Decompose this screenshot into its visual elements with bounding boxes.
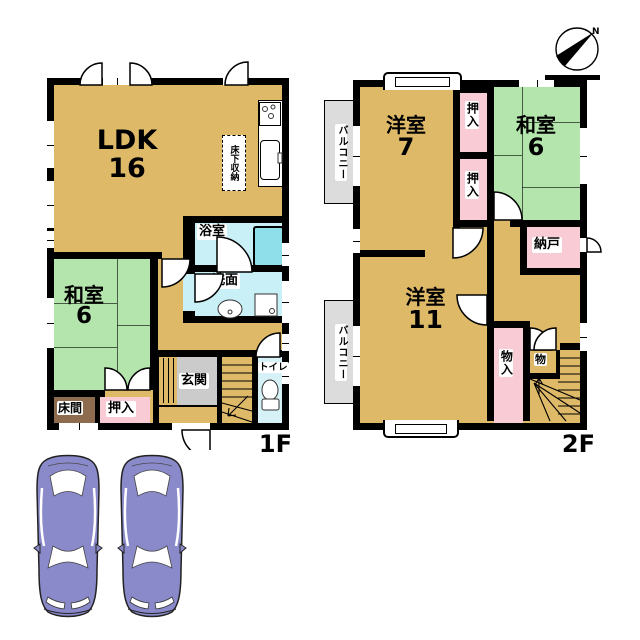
exterior-door-swing bbox=[587, 238, 601, 252]
wall bbox=[183, 216, 195, 274]
up-arrow bbox=[535, 378, 543, 394]
window bbox=[353, 325, 360, 387]
wall bbox=[183, 216, 282, 223]
window bbox=[47, 297, 54, 349]
nando-label: 納戸 bbox=[532, 237, 562, 253]
stove-burner-icon bbox=[259, 102, 281, 126]
oshiire-lower-label: 押入 bbox=[465, 171, 479, 199]
wall bbox=[520, 268, 580, 275]
tatami-line bbox=[117, 325, 150, 326]
yoshitsu11-name: 洋室 bbox=[378, 287, 473, 307]
wall bbox=[460, 152, 487, 159]
yoshitsu7-size: 7 bbox=[362, 135, 450, 159]
wall bbox=[487, 227, 494, 421]
window bbox=[518, 80, 555, 87]
wall bbox=[54, 252, 162, 259]
washitsu-2f-name: 和室 bbox=[494, 115, 578, 135]
bathroom-label: 浴室 bbox=[197, 224, 227, 240]
wall bbox=[510, 220, 580, 227]
closet-door-swing bbox=[530, 328, 552, 350]
car-top-view-icon bbox=[118, 456, 186, 617]
floor1-plan: 床下収納 LDK 16 bbox=[47, 78, 289, 430]
underfloor-storage-box: 床下収納 bbox=[222, 135, 246, 191]
north-compass-icon: N bbox=[548, 22, 606, 76]
wall bbox=[494, 321, 523, 328]
window bbox=[47, 180, 54, 229]
wall bbox=[360, 250, 425, 257]
entrance-step bbox=[159, 358, 177, 403]
mono-label: 物 bbox=[534, 353, 547, 366]
washitsu-1f-label: 和室 6 bbox=[54, 285, 114, 329]
parking-cars bbox=[28, 446, 194, 626]
wall bbox=[487, 87, 494, 227]
wall bbox=[95, 397, 100, 423]
window bbox=[580, 127, 587, 185]
closet-door-swing bbox=[534, 328, 556, 350]
yoshitsu7-name: 洋室 bbox=[362, 115, 450, 135]
floorplan-canvas: バルコニー バルコニー 床下収納 bbox=[0, 0, 640, 640]
washroom-label: 洗面 bbox=[210, 273, 240, 289]
washitsu-1f-size: 6 bbox=[54, 305, 114, 328]
wall bbox=[153, 357, 159, 423]
wall bbox=[560, 343, 580, 350]
oshiire-1f-label: 押入 bbox=[106, 401, 136, 417]
wall bbox=[54, 390, 105, 397]
ldk-label: LDK 16 bbox=[82, 127, 172, 182]
yoshitsu7-label: 洋室 7 bbox=[362, 115, 450, 160]
front-door-opening bbox=[172, 423, 210, 430]
wall bbox=[195, 265, 282, 272]
wall bbox=[183, 316, 282, 323]
washitsu-2f-size: 6 bbox=[494, 135, 578, 159]
bay-window bbox=[383, 72, 462, 90]
wall bbox=[460, 87, 487, 93]
wall bbox=[523, 321, 530, 421]
washitsu-2f-label: 和室 6 bbox=[494, 115, 578, 160]
floor2-label: 2F bbox=[545, 430, 595, 458]
door-opening bbox=[580, 238, 587, 252]
car-top-view-icon bbox=[34, 456, 102, 617]
kitchen-sink-icon bbox=[260, 140, 280, 180]
monoire-label: 物入 bbox=[499, 349, 513, 377]
bathtub-icon bbox=[253, 226, 284, 267]
bay-window bbox=[383, 420, 459, 438]
wall bbox=[222, 350, 264, 357]
svg-text:N: N bbox=[592, 27, 600, 37]
window-swing bbox=[130, 63, 152, 85]
compass-underline bbox=[545, 75, 600, 80]
tatami-line bbox=[54, 347, 117, 348]
yoshitsu11-label: 洋室 11 bbox=[378, 287, 473, 333]
bay-window-sash bbox=[395, 424, 447, 434]
ldk-name: LDK bbox=[82, 127, 172, 155]
balcony-upper-label: バルコニー bbox=[335, 124, 347, 181]
balcony-lower-label: バルコニー bbox=[335, 324, 347, 381]
yoshitsu11-size: 11 bbox=[378, 307, 473, 333]
window bbox=[282, 333, 289, 352]
washitsu-1f-name: 和室 bbox=[54, 285, 114, 305]
entrance-label: 玄関 bbox=[179, 373, 209, 389]
bay-window-sash bbox=[395, 77, 450, 87]
wall bbox=[530, 373, 558, 379]
window bbox=[353, 228, 360, 254]
wall bbox=[217, 350, 222, 423]
window-sill bbox=[102, 78, 132, 85]
window bbox=[580, 322, 587, 352]
wall bbox=[460, 220, 494, 227]
floor2-plan: 洋室 7 和室 6 洋室 11 押入 押入 納戸 物入 物 bbox=[353, 80, 587, 430]
window bbox=[282, 242, 289, 267]
floor1-label: 1F bbox=[242, 430, 292, 458]
oshiire-upper-label: 押入 bbox=[465, 101, 479, 129]
window bbox=[47, 230, 54, 249]
wall bbox=[153, 350, 222, 357]
tatami-line bbox=[522, 187, 580, 188]
window bbox=[282, 280, 289, 324]
wall bbox=[453, 87, 460, 257]
door-opening bbox=[223, 78, 248, 85]
window-swing bbox=[80, 63, 102, 85]
window bbox=[47, 120, 54, 169]
window bbox=[353, 125, 360, 187]
entrance-step-line bbox=[157, 405, 217, 407]
toilet-label: トイレ bbox=[258, 362, 289, 373]
tokonoma-label: 床間 bbox=[57, 401, 83, 415]
stairs-icon bbox=[222, 365, 252, 422]
underfloor-storage-label: 床下収納 bbox=[228, 145, 241, 181]
ldk-size: 16 bbox=[82, 155, 172, 183]
window bbox=[58, 423, 99, 430]
wall bbox=[520, 227, 527, 268]
